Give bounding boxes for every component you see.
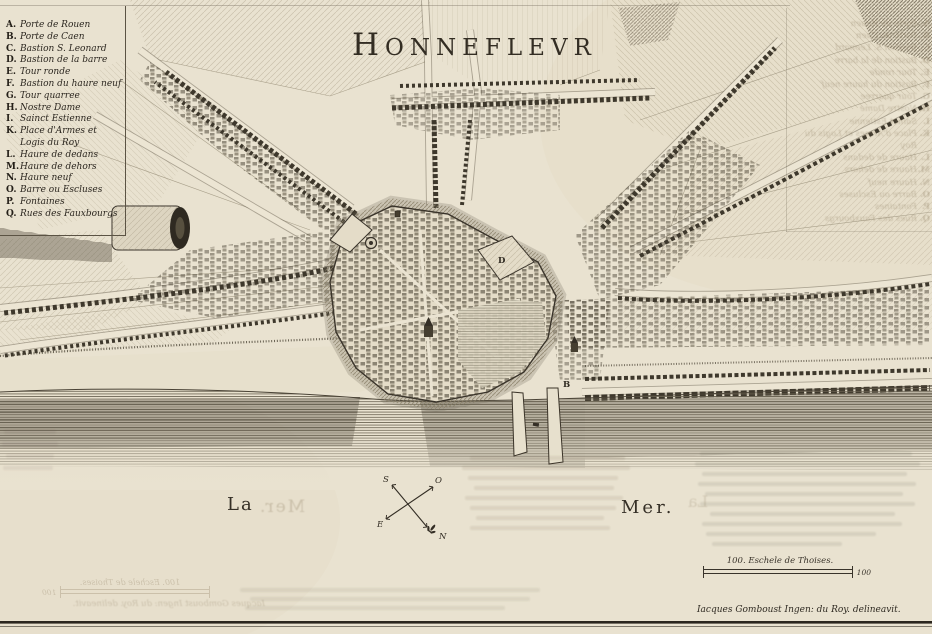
legend-item: A.Porte de Rouen <box>6 20 125 32</box>
page-title: HONNEFLEVR <box>352 27 582 63</box>
ghost-legend-item: N.Haure neuf <box>786 177 930 189</box>
ghost-legend-item: E.Tour ronde <box>786 67 930 79</box>
legend-item: C.Bastion S. Leonard <box>6 44 125 56</box>
ghost-legend-item: L.Haure de dedans <box>786 152 930 164</box>
marker-d: D <box>498 256 506 266</box>
engraved-town-map-honfleur: S O E N D B <box>0 0 932 634</box>
ghost-legend-item: F.Bastion du haure neuf <box>786 79 930 91</box>
map-legend: A.Porte de Rouen B.Porte de Caen C.Basti… <box>0 6 126 236</box>
marker-b: B <box>563 380 570 390</box>
sea-fade <box>0 428 932 490</box>
ghost-legend-item: H.Nostre Dame <box>786 103 930 115</box>
legend-item: I.Sainct Estienne <box>6 114 125 126</box>
legend-item: N.Haure neuf <box>6 173 125 185</box>
ghost-legend-item: M.Haure de dehors <box>786 164 930 176</box>
ghost-legend-item: B.Porte de Caen <box>786 30 930 42</box>
ghost-legend-item: P.Fontaines <box>786 201 930 213</box>
legend-item: H.Nostre Dame <box>6 103 125 115</box>
ghost-legend-item: Q.Rues des Fauxbourgs <box>786 213 930 225</box>
legend-item: D.Bastion de la barre <box>6 55 125 67</box>
legend-item: Q.Rues des Fauxbourgs <box>6 209 125 221</box>
sea-label-la: La <box>227 494 254 515</box>
legend-item: G.Tour quarree <box>6 91 125 103</box>
ghost-la-label: La <box>688 492 708 511</box>
scale-caption: 100. Eschele de Thoises. <box>700 556 860 566</box>
ghost-engraver-credit: Iacques Gomboust Ingen: du Roy. delineav… <box>30 599 265 609</box>
engraver-credit: Iacques Gomboust Ingen: du Roy. delineav… <box>697 605 901 615</box>
square-tower <box>395 211 400 217</box>
ghost-legend-item: G.Tour quarree <box>786 91 930 103</box>
scale-end-value: 100 <box>857 568 871 577</box>
ghost-legend-item: D.Bastion de la barre <box>786 55 930 67</box>
ghost-mer-label: Mer. <box>258 497 305 517</box>
compass-label-s: S <box>383 475 389 485</box>
legend-item: E.Tour ronde <box>6 67 125 79</box>
ghost-scale-bar: 100. Eschele de Thoises. 100 <box>30 578 220 594</box>
legend-item: B.Porte de Caen <box>6 32 125 44</box>
legend-item: K.Place d'Armes et Logis du Roy <box>6 126 125 150</box>
ghost-legend-show-through: A.Porte de Rouen B.Porte de Caen C.Basti… <box>786 10 930 225</box>
legend-item: P.Fontaines <box>6 197 125 209</box>
compass-label-e: E <box>376 520 384 530</box>
scale-bar: 100 <box>703 569 853 574</box>
compass-label-n: N <box>438 532 447 542</box>
legend-item: M.Haure de dehors <box>6 162 125 174</box>
ghost-legend-item: I.Sainct Estienne <box>786 116 930 128</box>
compass-label-o: O <box>435 476 442 486</box>
ghost-legend-item: C.Bastion S. Leonard <box>786 42 930 54</box>
legend-item: L.Haure de dedans <box>6 150 125 162</box>
legend-item: F.Bastion du haure neuf <box>6 79 125 91</box>
ghost-legend-item: O.Barre ou Escluses <box>786 189 930 201</box>
sea-label-mer: Mer. <box>621 497 674 518</box>
legend-item: O.Barre ou Escluses <box>6 185 125 197</box>
ghost-legend-item: A.Porte de Rouen <box>786 18 930 30</box>
ghost-legend-item: K.Place d'Armes et Logis du Roy <box>786 128 930 152</box>
